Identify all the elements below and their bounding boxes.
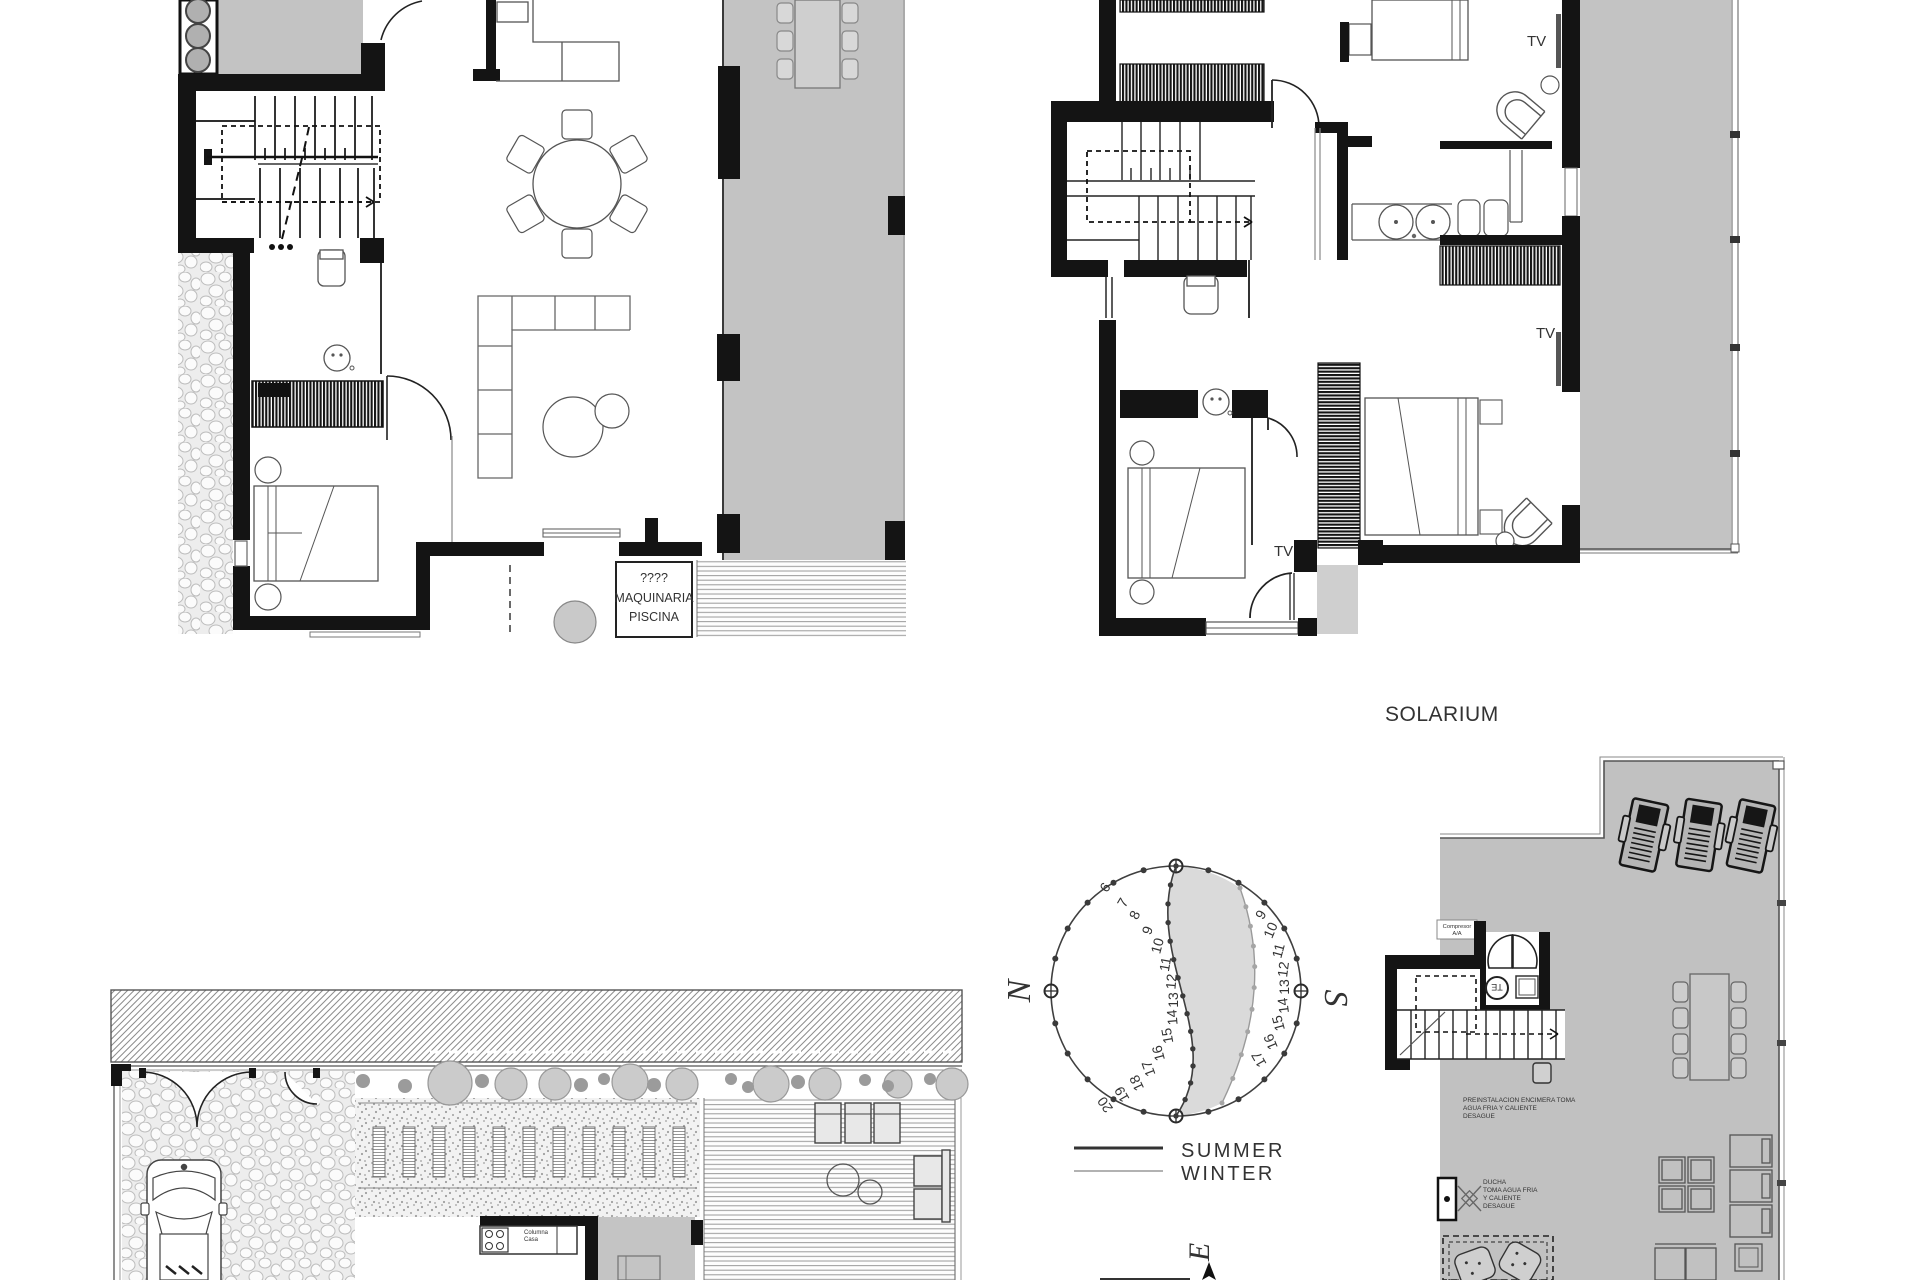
svg-text:E: E [1183, 1243, 1216, 1262]
svg-text:TE: TE [1491, 982, 1503, 992]
svg-text:S: S [1317, 990, 1354, 1007]
svg-text:A/A: A/A [1452, 931, 1461, 937]
svg-text:13: 13 [1276, 979, 1292, 995]
svg-text:TV: TV [1527, 33, 1546, 50]
svg-text:14: 14 [1274, 997, 1292, 1015]
svg-text:12: 12 [1274, 960, 1292, 978]
svg-text:SOLARIUM: SOLARIUM [1385, 703, 1499, 726]
svg-text:WINTER: WINTER [1181, 1163, 1275, 1185]
svg-text:Compresor: Compresor [1443, 924, 1472, 930]
svg-text:MAQUINARIA: MAQUINARIA [614, 591, 694, 605]
svg-text:Casa: Casa [524, 1237, 539, 1243]
svg-text:TV: TV [1536, 325, 1555, 342]
svg-text:Columna: Columna [524, 1230, 549, 1236]
svg-text:15: 15 [1158, 1027, 1176, 1045]
svg-text:14: 14 [1163, 1009, 1180, 1026]
svg-text:????: ???? [640, 571, 668, 585]
svg-text:DESAGUE: DESAGUE [1483, 1203, 1515, 1210]
svg-text:TV: TV [1274, 543, 1293, 560]
svg-text:TOMA AGUA FRIA: TOMA AGUA FRIA [1483, 1187, 1538, 1194]
svg-text:PREINSTALACION ENCIMERA TOMA: PREINSTALACION ENCIMERA TOMA [1463, 1097, 1576, 1104]
svg-text:DUCHA: DUCHA [1483, 1179, 1507, 1186]
svg-text:11: 11 [1156, 955, 1174, 972]
svg-text:13: 13 [1165, 992, 1181, 1008]
svg-text:12: 12 [1162, 973, 1179, 990]
svg-text:PISCINA: PISCINA [629, 610, 680, 624]
svg-text:DESAGUE: DESAGUE [1463, 1113, 1495, 1120]
svg-text:AGUA FRIA Y CALIENTE: AGUA FRIA Y CALIENTE [1463, 1105, 1537, 1112]
svg-text:SUMMER: SUMMER [1181, 1140, 1285, 1162]
svg-text:Y CALIENTE: Y CALIENTE [1483, 1195, 1521, 1202]
svg-text:N: N [1001, 977, 1038, 1003]
